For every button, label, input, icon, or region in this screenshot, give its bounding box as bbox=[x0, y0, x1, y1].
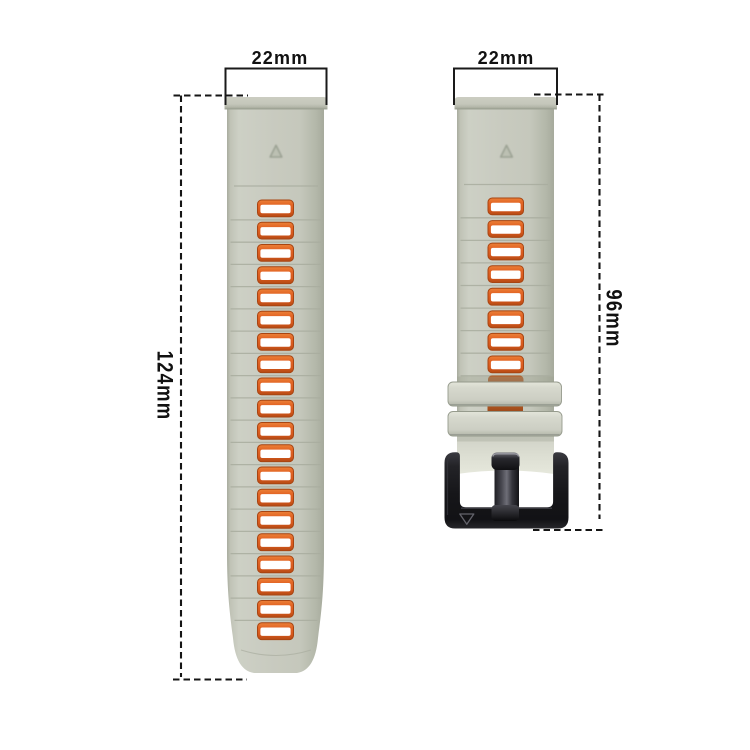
svg-text:96mm: 96mm bbox=[601, 289, 626, 347]
svg-text:124mm: 124mm bbox=[152, 351, 177, 421]
svg-text:22mm: 22mm bbox=[478, 48, 535, 68]
svg-text:22mm: 22mm bbox=[252, 48, 309, 68]
